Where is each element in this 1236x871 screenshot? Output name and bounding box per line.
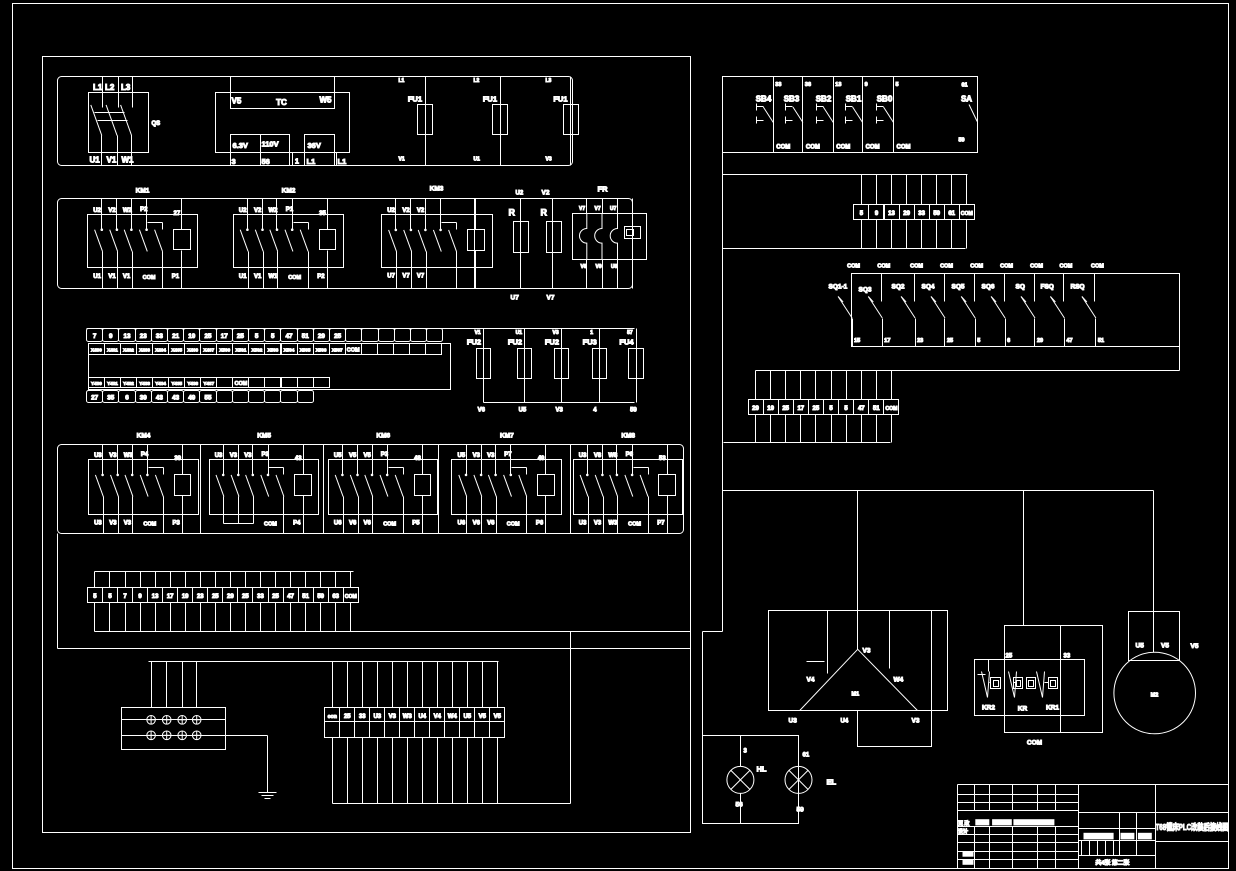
svg-text:COM: COM <box>1027 740 1042 747</box>
svg-text:V6: V6 <box>478 408 486 414</box>
svg-text:共4张 第二张: 共4张 第二张 <box>1096 859 1130 867</box>
svg-text:55: 55 <box>204 394 212 401</box>
svg-text:V5: V5 <box>232 97 242 106</box>
svg-text:V3: V3 <box>244 453 252 459</box>
svg-text:X403: X403 <box>139 348 150 353</box>
svg-text:25: 25 <box>813 406 820 412</box>
svg-text:23: 23 <box>197 594 204 600</box>
svg-text:COM: COM <box>143 521 156 527</box>
svg-text:W4: W4 <box>894 677 904 684</box>
svg-text:Y431: Y431 <box>107 381 118 386</box>
svg-text:V8: V8 <box>594 453 602 459</box>
svg-text:KM4: KM4 <box>137 433 151 440</box>
svg-text:43: 43 <box>295 456 302 462</box>
svg-text:19: 19 <box>188 333 196 340</box>
svg-text:SQ1-1: SQ1-1 <box>829 284 848 291</box>
svg-text:SB2: SB2 <box>816 95 832 104</box>
svg-text:X405: X405 <box>171 348 182 353</box>
svg-text:V2: V2 <box>254 208 262 214</box>
svg-text:V5: V5 <box>494 714 502 720</box>
svg-text:13: 13 <box>152 594 159 600</box>
svg-text:33: 33 <box>156 333 164 340</box>
svg-text:R: R <box>541 208 548 218</box>
svg-text:5: 5 <box>977 338 980 344</box>
svg-text:COM: COM <box>345 594 357 600</box>
svg-text:P1: P1 <box>172 274 180 280</box>
svg-text:V5: V5 <box>1191 643 1199 650</box>
svg-text:V6: V6 <box>473 520 481 526</box>
svg-text:29: 29 <box>318 333 326 340</box>
svg-text:43: 43 <box>172 394 180 401</box>
svg-text:KM3: KM3 <box>430 186 444 193</box>
svg-text:Y430: Y430 <box>91 381 102 386</box>
svg-text:SQ: SQ <box>1016 284 1025 291</box>
svg-text:U5: U5 <box>334 453 342 459</box>
svg-text:W2: W2 <box>123 208 133 214</box>
svg-text:5: 5 <box>255 333 259 340</box>
svg-text:V3: V3 <box>594 520 602 526</box>
svg-text:P7: P7 <box>504 452 512 458</box>
svg-text:53: 53 <box>659 456 666 462</box>
svg-text:U6: U6 <box>458 520 466 526</box>
svg-text:COM: COM <box>288 275 301 281</box>
svg-text:U5: U5 <box>458 453 466 459</box>
svg-text:V9: V9 <box>596 264 602 270</box>
svg-text:U6: U6 <box>334 520 342 526</box>
svg-text:U1: U1 <box>90 156 101 165</box>
svg-text:COM: COM <box>877 264 890 270</box>
svg-text:U3: U3 <box>789 718 798 725</box>
svg-text:47: 47 <box>858 406 865 412</box>
svg-text:COM: COM <box>836 145 850 151</box>
svg-text:FU1: FU1 <box>483 95 497 104</box>
svg-text:U7: U7 <box>387 273 395 279</box>
svg-text:13: 13 <box>835 82 841 88</box>
svg-text:13: 13 <box>888 211 895 217</box>
svg-text:SB1: SB1 <box>846 95 862 104</box>
svg-text:61: 61 <box>948 211 955 217</box>
svg-text:23: 23 <box>917 338 923 344</box>
svg-text:W1: W1 <box>122 156 135 165</box>
svg-text:SB3: SB3 <box>784 95 800 104</box>
svg-text:SB0: SB0 <box>877 95 893 104</box>
svg-text:KR2: KR2 <box>982 705 995 712</box>
svg-text:33: 33 <box>775 82 781 88</box>
svg-text:V2: V2 <box>542 190 550 197</box>
svg-text:43: 43 <box>156 394 164 401</box>
svg-text:U2: U2 <box>387 208 395 214</box>
svg-text:59: 59 <box>797 807 805 814</box>
svg-text:FU3: FU3 <box>583 338 597 347</box>
svg-text:EL: EL <box>827 778 837 787</box>
svg-text:V7: V7 <box>579 206 585 212</box>
svg-text:9: 9 <box>875 211 879 217</box>
svg-text:33: 33 <box>1064 654 1071 660</box>
svg-text:V7: V7 <box>402 273 410 279</box>
svg-text:P2: P2 <box>317 274 325 280</box>
svg-text:U5: U5 <box>1136 643 1145 650</box>
svg-text:V1: V1 <box>475 330 481 336</box>
svg-text:COM: COM <box>1030 264 1043 270</box>
svg-text:V4: V4 <box>434 714 442 720</box>
svg-text:25: 25 <box>237 333 245 340</box>
svg-text:L1: L1 <box>307 157 316 166</box>
svg-text:FU1: FU1 <box>553 95 567 104</box>
svg-text:1: 1 <box>590 330 593 336</box>
svg-text:X506: X506 <box>316 348 327 353</box>
svg-text:27: 27 <box>174 211 181 217</box>
svg-text:COM: COM <box>847 264 860 270</box>
svg-text:W3: W3 <box>403 714 413 720</box>
svg-text:U4: U4 <box>418 714 426 720</box>
svg-text:KM1: KM1 <box>136 188 150 195</box>
svg-text:V6: V6 <box>349 520 357 526</box>
svg-text:V3: V3 <box>473 453 481 459</box>
svg-text:X402: X402 <box>123 348 134 353</box>
svg-text:51: 51 <box>1098 338 1104 344</box>
svg-text:3: 3 <box>744 749 748 755</box>
svg-text:KM8: KM8 <box>621 433 635 440</box>
svg-text:29: 29 <box>227 594 234 600</box>
svg-text:59: 59 <box>317 594 324 600</box>
svg-text:V3: V3 <box>124 520 132 526</box>
svg-text:5: 5 <box>844 406 848 412</box>
svg-text:COM: COM <box>1091 264 1104 270</box>
svg-text:V2: V2 <box>108 208 116 214</box>
svg-text:33: 33 <box>918 211 925 217</box>
svg-text:51: 51 <box>302 594 309 600</box>
svg-text:V1: V1 <box>107 156 117 165</box>
svg-text:47: 47 <box>287 594 294 600</box>
svg-text:33: 33 <box>359 714 366 720</box>
svg-text:5: 5 <box>860 211 864 217</box>
svg-text:17: 17 <box>797 406 804 412</box>
svg-text:25: 25 <box>782 406 789 412</box>
svg-text:X404: X404 <box>155 348 166 353</box>
svg-text:SQ6: SQ6 <box>982 284 995 291</box>
svg-text:U1: U1 <box>474 157 481 163</box>
svg-text:SQ5: SQ5 <box>952 284 965 291</box>
svg-text:U3: U3 <box>94 520 102 526</box>
svg-text:COM: COM <box>628 521 641 527</box>
svg-text:V2: V2 <box>402 208 410 214</box>
svg-text:M2: M2 <box>1151 693 1159 699</box>
svg-text:36: 36 <box>805 82 811 88</box>
svg-text:P5: P5 <box>412 520 420 526</box>
svg-text:V1: V1 <box>399 157 405 163</box>
svg-text:L2: L2 <box>105 83 115 92</box>
svg-text:COM: COM <box>897 145 911 151</box>
svg-text:U2: U2 <box>93 208 101 214</box>
svg-text:P3: P3 <box>381 452 389 458</box>
svg-text:X504: X504 <box>284 348 295 353</box>
svg-text:FU2: FU2 <box>545 338 559 347</box>
svg-text:29: 29 <box>752 406 759 412</box>
svg-text:35: 35 <box>107 394 115 401</box>
svg-text:V7: V7 <box>547 295 555 302</box>
svg-text:KM5: KM5 <box>257 433 271 440</box>
svg-text:61: 61 <box>803 753 810 759</box>
svg-text:Y434: Y434 <box>155 381 166 386</box>
svg-text:V3: V3 <box>487 453 495 459</box>
svg-text:更 改: 更 改 <box>958 820 970 827</box>
svg-text:U1: U1 <box>516 330 523 336</box>
svg-text:P7: P7 <box>657 520 665 526</box>
svg-text:V3: V3 <box>389 714 397 720</box>
svg-text:25: 25 <box>242 594 249 600</box>
svg-text:P3: P3 <box>262 452 270 458</box>
svg-text:X406: X406 <box>187 348 198 353</box>
svg-text:23: 23 <box>140 333 148 340</box>
svg-text:U3: U3 <box>579 520 587 526</box>
svg-text:5: 5 <box>93 594 97 600</box>
svg-text:KR: KR <box>1018 706 1028 713</box>
svg-text:L3: L3 <box>121 83 131 92</box>
svg-text:P3: P3 <box>173 520 181 526</box>
svg-text:KR1: KR1 <box>1046 705 1059 712</box>
svg-text:COM: COM <box>885 406 897 412</box>
svg-text:V3: V3 <box>556 408 564 414</box>
svg-text:P4: P4 <box>141 452 149 458</box>
svg-text:W1: W1 <box>269 274 279 280</box>
svg-text:25: 25 <box>947 338 953 344</box>
svg-text:9: 9 <box>138 594 142 600</box>
svg-text:U2: U2 <box>516 191 524 197</box>
svg-text:V3: V3 <box>553 330 559 336</box>
svg-text:SQ4: SQ4 <box>922 284 935 291</box>
svg-text:56: 56 <box>736 802 744 809</box>
svg-text:29: 29 <box>903 211 910 217</box>
svg-text:P1: P1 <box>286 207 294 213</box>
svg-text:57: 57 <box>627 330 633 336</box>
svg-text:U3: U3 <box>94 453 102 459</box>
svg-text:7: 7 <box>123 594 127 600</box>
svg-text:19: 19 <box>767 406 774 412</box>
svg-text:COM: COM <box>143 275 156 281</box>
svg-text:49: 49 <box>188 394 196 401</box>
svg-text:39: 39 <box>174 456 181 462</box>
svg-text:P2: P2 <box>140 207 148 213</box>
svg-text:V1: V1 <box>123 274 131 280</box>
svg-text:17: 17 <box>167 594 174 600</box>
svg-text:39: 39 <box>140 394 148 401</box>
svg-text:L1: L1 <box>338 157 347 166</box>
svg-text:U7: U7 <box>511 295 520 302</box>
svg-text:X507: X507 <box>332 348 343 353</box>
svg-text:U1: U1 <box>93 274 101 280</box>
svg-text:59: 59 <box>959 138 965 144</box>
svg-text:COM: COM <box>1059 264 1072 270</box>
svg-text:9: 9 <box>109 333 113 340</box>
svg-text:W8: W8 <box>608 453 618 459</box>
svg-text:P6: P6 <box>536 520 544 526</box>
svg-text:KM2: KM2 <box>282 188 296 195</box>
svg-text:6: 6 <box>125 394 129 401</box>
svg-text:SQ2: SQ2 <box>892 284 905 291</box>
svg-text:33: 33 <box>257 594 264 600</box>
svg-text:U1: U1 <box>239 274 247 280</box>
svg-text:Y436: Y436 <box>187 381 198 386</box>
svg-text:61: 61 <box>962 83 968 89</box>
svg-text:FU4: FU4 <box>619 338 634 347</box>
svg-text:L3: L3 <box>546 78 552 84</box>
svg-text:RSQ: RSQ <box>1071 284 1085 291</box>
svg-text:V3: V3 <box>230 453 238 459</box>
svg-text:T68镗床PLC改装后接线图: T68镗床PLC改装后接线图 <box>1156 822 1229 832</box>
svg-text:5: 5 <box>271 333 275 340</box>
svg-text:V1: V1 <box>108 274 116 280</box>
svg-text:FU1: FU1 <box>408 95 422 104</box>
svg-text:51: 51 <box>302 333 310 340</box>
svg-text:QS: QS <box>152 121 161 127</box>
svg-text:V4: V4 <box>807 677 815 684</box>
svg-text:U7: U7 <box>610 206 617 212</box>
svg-text:X407: X407 <box>203 348 214 353</box>
svg-text:V3: V3 <box>546 157 552 163</box>
svg-text:48: 48 <box>414 456 421 462</box>
svg-text:V5: V5 <box>479 714 487 720</box>
svg-text:COM: COM <box>970 264 983 270</box>
svg-text:Y433: Y433 <box>139 381 150 386</box>
svg-text:25: 25 <box>344 714 351 720</box>
svg-text:5: 5 <box>896 82 899 88</box>
svg-text:V3: V3 <box>863 648 871 655</box>
svg-text:X401: X401 <box>107 348 118 353</box>
svg-text:25: 25 <box>334 333 342 340</box>
svg-text:W4: W4 <box>448 714 458 720</box>
svg-text:COM: COM <box>866 145 880 151</box>
svg-text:SQ3: SQ3 <box>859 287 872 294</box>
svg-text:SB4: SB4 <box>756 95 772 104</box>
svg-text:V3: V3 <box>109 453 117 459</box>
svg-text:6.3V: 6.3V <box>233 141 248 150</box>
svg-text:COM: COM <box>806 145 820 151</box>
svg-text:25: 25 <box>272 594 279 600</box>
svg-text:U3: U3 <box>215 453 223 459</box>
svg-text:V8: V8 <box>581 264 587 270</box>
svg-text:U2: U2 <box>239 208 247 214</box>
svg-text:X503: X503 <box>268 348 279 353</box>
svg-text:Y432: Y432 <box>123 381 134 386</box>
svg-text:COM: COM <box>234 381 247 387</box>
svg-text:COM: COM <box>507 521 520 527</box>
svg-text:19: 19 <box>182 594 189 600</box>
svg-text:56: 56 <box>262 157 270 166</box>
svg-text:36V: 36V <box>308 141 321 150</box>
svg-text:R: R <box>509 208 516 218</box>
svg-text:51: 51 <box>873 406 880 412</box>
svg-text:V3: V3 <box>109 520 117 526</box>
svg-text:COM: COM <box>961 211 973 217</box>
svg-text:49: 49 <box>538 456 545 462</box>
svg-text:5: 5 <box>829 406 833 412</box>
svg-text:63: 63 <box>332 594 339 600</box>
svg-text:110V: 110V <box>262 140 279 149</box>
svg-text:COM: COM <box>1000 264 1013 270</box>
svg-text:X400: X400 <box>91 348 102 353</box>
svg-text:U5: U5 <box>463 714 471 720</box>
svg-text:W2: W2 <box>269 208 279 214</box>
svg-text:V3: V3 <box>912 718 920 725</box>
svg-text:L2: L2 <box>474 78 480 84</box>
svg-text:V5: V5 <box>349 453 357 459</box>
svg-text:1: 1 <box>295 159 299 166</box>
svg-text:SA: SA <box>961 95 972 104</box>
svg-text:P6: P6 <box>626 452 634 458</box>
svg-text:13: 13 <box>123 333 131 340</box>
svg-text:COM: COM <box>347 348 360 354</box>
svg-text:25: 25 <box>204 333 212 340</box>
svg-text:U4: U4 <box>841 719 849 725</box>
svg-text:Y435: Y435 <box>171 381 182 386</box>
svg-text:U9: U9 <box>611 264 618 270</box>
svg-text:FU2: FU2 <box>467 338 481 347</box>
svg-text:FU2: FU2 <box>508 338 522 347</box>
svg-text:L1: L1 <box>93 83 103 92</box>
svg-text:COM: COM <box>940 264 953 270</box>
svg-text:设计: 设计 <box>958 828 968 835</box>
svg-text:W3: W3 <box>608 520 618 526</box>
svg-text:KM7: KM7 <box>500 433 514 440</box>
svg-text:V7: V7 <box>595 206 601 212</box>
svg-text:L1: L1 <box>399 78 405 84</box>
svg-text:M1: M1 <box>852 692 860 698</box>
svg-text:17: 17 <box>884 338 890 344</box>
svg-text:KM6: KM6 <box>376 433 390 440</box>
svg-text:HL: HL <box>757 765 767 774</box>
svg-text:3: 3 <box>232 157 236 166</box>
svg-text:V6: V6 <box>487 520 495 526</box>
svg-text:COM: COM <box>383 521 396 527</box>
svg-text:U3: U3 <box>373 714 381 720</box>
svg-text:COM: COM <box>264 521 277 527</box>
svg-text:con: con <box>328 714 337 720</box>
svg-text:6: 6 <box>1007 338 1010 344</box>
svg-text:X505: X505 <box>300 348 311 353</box>
svg-text:21: 21 <box>172 333 180 340</box>
svg-text:X502: X502 <box>252 348 263 353</box>
svg-text:35: 35 <box>319 211 326 217</box>
svg-text:Y437: Y437 <box>203 381 214 386</box>
svg-text:COM: COM <box>910 264 923 270</box>
svg-text:17: 17 <box>221 333 229 340</box>
svg-text:X501: X501 <box>236 348 247 353</box>
svg-text:FSQ: FSQ <box>1041 284 1054 291</box>
svg-text:FR: FR <box>598 185 609 194</box>
svg-text:15: 15 <box>854 338 860 344</box>
svg-text:W3: W3 <box>124 453 134 459</box>
svg-text:V6: V6 <box>364 520 372 526</box>
svg-text:29: 29 <box>1037 338 1043 344</box>
svg-text:27: 27 <box>91 394 99 401</box>
svg-text:25: 25 <box>1006 654 1013 660</box>
svg-text:59: 59 <box>630 408 637 414</box>
svg-text:V5: V5 <box>364 453 372 459</box>
svg-text:P4: P4 <box>293 520 301 526</box>
svg-text:4: 4 <box>593 408 597 414</box>
svg-text:V5: V5 <box>1161 643 1169 650</box>
svg-text:47: 47 <box>285 333 293 340</box>
svg-text:U3: U3 <box>579 453 587 459</box>
svg-text:25: 25 <box>212 594 219 600</box>
svg-text:V2: V2 <box>417 208 425 214</box>
svg-text:59: 59 <box>933 211 940 217</box>
svg-text:47: 47 <box>1066 338 1072 344</box>
svg-text:7: 7 <box>93 333 97 340</box>
svg-text:U5: U5 <box>519 408 527 414</box>
svg-text:9: 9 <box>865 82 868 88</box>
svg-text:W5: W5 <box>320 96 333 105</box>
